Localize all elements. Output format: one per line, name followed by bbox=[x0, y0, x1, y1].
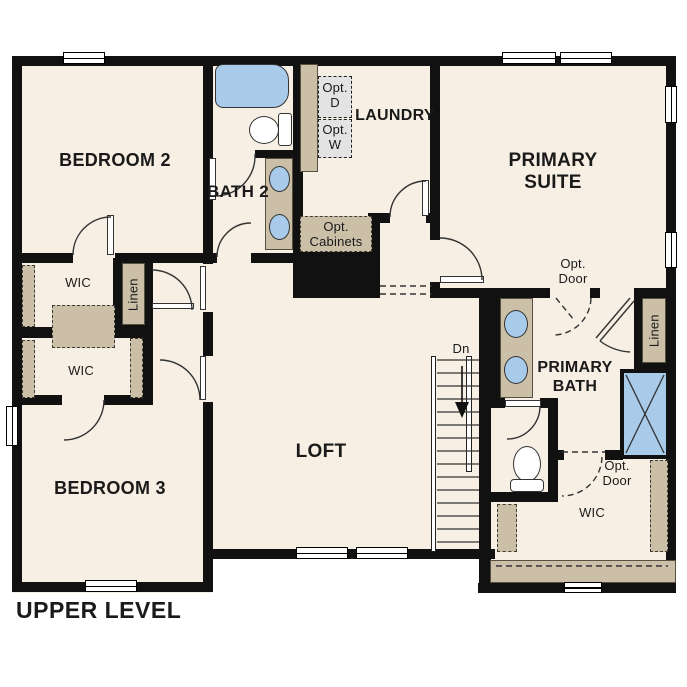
sink-primary-1 bbox=[504, 310, 528, 338]
wall-connector-left bbox=[203, 549, 213, 592]
label-opt-cabinets: Opt. Cabinets bbox=[300, 219, 372, 250]
wall-bedroom2-bottom-b bbox=[115, 253, 213, 263]
wic-primary-shelf-right bbox=[650, 460, 668, 552]
door-leaf-bedroom2 bbox=[107, 215, 114, 255]
stair-rail-left bbox=[431, 356, 436, 552]
sink-primary-2 bbox=[504, 356, 528, 384]
window-loft-bottom-2 bbox=[356, 547, 408, 559]
floor-plan: BEDROOM 2 BEDROOM 3 BATH 2 LAUNDRY PRIMA… bbox=[0, 0, 687, 687]
wall-linen-right-left bbox=[634, 288, 642, 373]
chase-void bbox=[293, 248, 379, 298]
wic-lower-shelf-right bbox=[130, 338, 143, 398]
wall-bath2-split bbox=[255, 150, 295, 158]
door-jamb-hall-upper bbox=[200, 266, 206, 310]
wic-upper-shelf-left bbox=[22, 265, 35, 327]
wall-bath-hall-divider bbox=[479, 288, 491, 593]
wall-wic-top-a bbox=[558, 450, 564, 460]
label-bedroom3: BEDROOM 3 bbox=[35, 478, 185, 499]
window-primary-top-2 bbox=[560, 52, 612, 64]
wall-loft-left-b bbox=[203, 402, 213, 551]
wall-bedroom2-bottom-a bbox=[12, 253, 73, 263]
window-bedroom2-top bbox=[63, 52, 105, 64]
window-bedroom3-left bbox=[6, 406, 18, 446]
wall-loft-left-a bbox=[203, 312, 213, 356]
bathtub bbox=[215, 64, 289, 108]
toilet-bath2-tank bbox=[278, 113, 292, 146]
toilet-bath2-bowl bbox=[249, 116, 279, 144]
wall-vanity-primary bbox=[491, 298, 500, 400]
label-bedroom2: BEDROOM 2 bbox=[40, 150, 190, 171]
toilet-primary-base bbox=[510, 479, 544, 492]
window-primary-top-1 bbox=[502, 52, 556, 64]
wic-primary-shelf-left bbox=[497, 504, 517, 552]
label-wic-primary: WIC bbox=[572, 505, 612, 520]
wic-primary-shelf-bottom bbox=[490, 560, 676, 583]
label-linen-left: Linen bbox=[125, 265, 140, 325]
label-loft: LOFT bbox=[291, 441, 351, 463]
wall-exterior-bottom-middle bbox=[205, 549, 495, 559]
stair-rail-center bbox=[466, 356, 472, 472]
wic-lower-shelf-left bbox=[22, 340, 35, 398]
window-primary-right-2 bbox=[665, 232, 677, 268]
wall-toilet-top-a bbox=[491, 398, 505, 408]
sink-bath2-2 bbox=[269, 214, 290, 240]
label-wic-upper: WIC bbox=[58, 275, 98, 290]
label-primary-suite: PRIMARY SUITE bbox=[488, 150, 618, 195]
wall-bedroom3-top-b bbox=[104, 395, 153, 405]
window-loft-bottom-1 bbox=[296, 547, 348, 559]
label-opt-washer: Opt. W bbox=[318, 122, 352, 153]
label-opt-door-wic: Opt. Door bbox=[594, 458, 640, 489]
wall-primary-south-b bbox=[590, 288, 600, 298]
wall-linen-left-bottom bbox=[115, 325, 153, 333]
window-bedroom3-bottom bbox=[85, 580, 137, 592]
wall-bath2-bottom-b bbox=[251, 253, 303, 263]
label-laundry: LAUNDRY bbox=[350, 107, 440, 126]
label-linen-right: Linen bbox=[646, 301, 661, 361]
toilet-primary-bowl bbox=[513, 446, 541, 482]
wall-toilet-bottom bbox=[491, 492, 558, 502]
label-stairs-down: Dn bbox=[448, 341, 474, 356]
exterior-recess bbox=[213, 559, 479, 593]
window-primary-right-1 bbox=[665, 86, 677, 123]
wall-exterior-left bbox=[12, 56, 22, 592]
label-opt-dryer: Opt. D bbox=[318, 80, 352, 111]
plan-title: UPPER LEVEL bbox=[16, 597, 236, 624]
window-wic-bottom bbox=[564, 582, 602, 593]
label-bath2: BATH 2 bbox=[207, 182, 269, 202]
label-primary-bath: PRIMARY BATH bbox=[530, 359, 620, 397]
label-opt-door-primary: Opt. Door bbox=[550, 256, 596, 287]
door-jamb-hall-lower bbox=[200, 356, 206, 400]
shower-primary bbox=[620, 369, 670, 459]
wall-bath2-bottom-a bbox=[203, 253, 217, 263]
door-leaf-hall-upper bbox=[152, 303, 194, 309]
door-leaf-toilet-room bbox=[505, 400, 541, 407]
label-wic-lower: WIC bbox=[61, 363, 101, 378]
door-leaf-laundry bbox=[422, 180, 429, 216]
laundry-counter bbox=[300, 64, 318, 172]
door-leaf-primary-suite bbox=[440, 276, 484, 283]
wall-toilet-right bbox=[548, 398, 558, 502]
wall-bedroom3-top-a bbox=[12, 395, 62, 405]
wic-middle-shelf bbox=[52, 305, 115, 348]
sink-bath2-1 bbox=[269, 166, 290, 192]
